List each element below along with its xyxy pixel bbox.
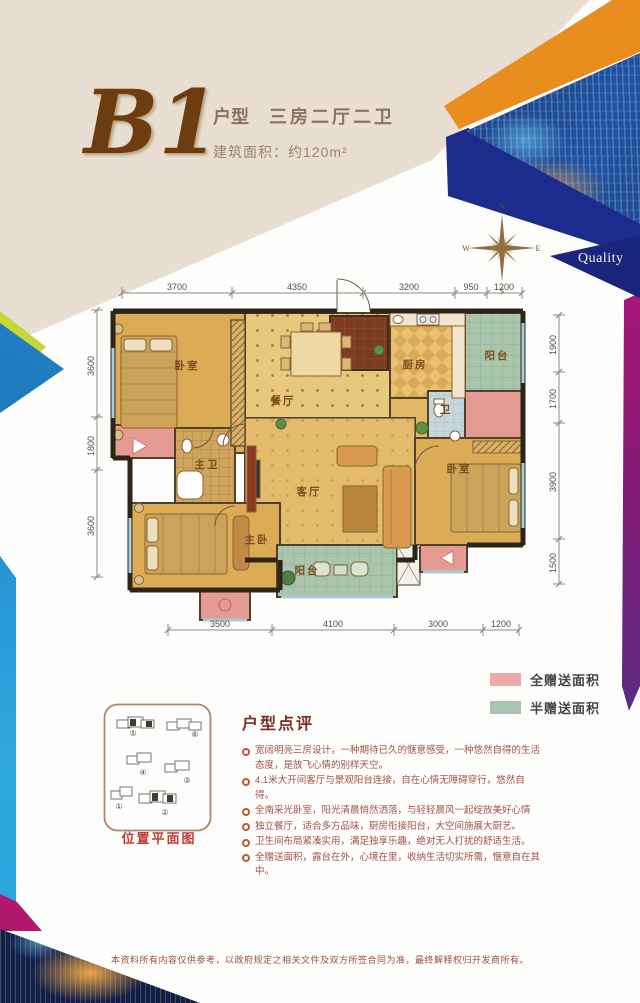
legend-row-full-gift: 全赠送面积 [490, 670, 600, 689]
review-bullet-text: 独立餐厅，适合多方品味，厨房衔接阳台，大空间施展大厨艺。 [255, 821, 521, 832]
review-section: 户型点评 宽阔明亮三房设计，一种期待已久的惬意感受，一种悠然自得的生活态度，是放… [242, 710, 540, 881]
dim-bottom-3: 3000 [428, 619, 448, 629]
building-6 [167, 719, 201, 730]
bullet-ring-icon [242, 748, 250, 756]
dim-top-3: 3200 [399, 282, 419, 292]
bullet-ring-icon [242, 839, 250, 847]
dim-right-1: 1900 [548, 335, 558, 355]
review-bullet-text: 宽阔明亮三房设计，一种期待已久的惬意感受，一种悠然自得的生活态度，是放飞心情的别… [255, 745, 540, 771]
location-plan: ⑤ ⑥ ④ ③ ① ② [103, 703, 215, 835]
room-label-balcony-top: 阳台 [485, 349, 510, 362]
bed-icon-topleft [113, 324, 177, 440]
gift-bay-bottomleft [200, 590, 250, 620]
dim-top-1: 3700 [167, 282, 187, 292]
legend-swatch-pink [490, 673, 521, 686]
legend-label-half-gift: 半赠送面积 [530, 698, 600, 717]
room-label-bedroom-right: 卧室 [447, 462, 472, 475]
room-label-kitchen: 厨房 [403, 358, 428, 371]
poster-canvas: Quality B1 户型 三房二厅二卫 建筑面积：约120m² [0, 0, 640, 1003]
building-2 [139, 791, 176, 803]
room-label-bedroom-topleft: 卧室 [175, 359, 200, 372]
room-label-dining: 餐厅 [270, 394, 296, 407]
header-text: 户型 三房二厅二卫 建筑面积：约120m² [213, 103, 543, 162]
room-label-bath-2: 卫 [440, 404, 453, 416]
building-1-number: ① [115, 802, 122, 811]
dim-top-5: 1200 [494, 282, 514, 292]
review-bullet: 宽阔明亮三房设计，一种期待已久的惬意感受，一种悠然自得的生活态度，是放飞心情的别… [242, 744, 540, 773]
room-label-balcony-bottom: 阳台 [295, 564, 320, 577]
review-bullet-text: 4.1米大开间客厅与景观阳台连接，自在心情无障碍穿行，悠然自得。 [255, 775, 525, 801]
room-label-living: 客厅 [296, 485, 322, 498]
dim-bottom-1: 3500 [210, 619, 230, 629]
review-bullet: 全赠送面积，露台在外，心境在里，收纳生活切实所需，惬意自在其中。 [242, 851, 540, 880]
review-bullet: 4.1米大开间客厅与景观阳台连接，自在心情无障碍穿行，悠然自得。 [242, 774, 540, 803]
review-bullet-text: 全赠送面积，露台在外，心境在里，收纳生活切实所需，惬意自在其中。 [255, 852, 540, 878]
gift-area-left [113, 425, 175, 458]
bullet-ring-icon [242, 823, 250, 831]
unit-type-line: 户型 三房二厅二卫 [213, 103, 543, 129]
building-2-number: ② [161, 808, 168, 817]
floor-plan: 3700 4350 3200 950 1200 3500 4100 3000 1… [85, 278, 575, 643]
building-3 [165, 761, 189, 772]
dim-top-2: 4350 [287, 282, 307, 292]
building-1 [111, 787, 132, 799]
review-bullet-text: 卫生间布局紧凑实用，满足独享乐趣，绝对无人打扰的舒适生活。 [255, 836, 531, 847]
building-5 [117, 717, 154, 728]
dim-left-2: 1800 [86, 436, 96, 456]
review-bullet: 独立餐厅，适合多方品味，厨房衔接阳台，大空间施展大厨艺。 [242, 820, 540, 835]
building-6-number: ⑥ [191, 730, 198, 739]
review-bullet: 卫生间布局紧凑实用，满足独享乐趣，绝对无人打扰的舒适生活。 [242, 835, 540, 850]
dim-bottom-2: 4100 [323, 619, 343, 629]
dim-left-1: 3600 [86, 356, 96, 376]
unit-type-label: 户型 [213, 103, 249, 129]
bullet-ring-icon [242, 808, 250, 816]
unit-area: 建筑面积：约120m² [213, 142, 543, 162]
review-bullet: 全南采光卧室，阳光清晨悄然洒落，与轻轻晨风一起绽放美好心情 [242, 804, 540, 819]
dim-left-3: 3600 [86, 516, 96, 536]
disclaimer: 本资料所有内容仅供参考，以政府规定之相关文件及双方所签合同为准，最终解释权归开发… [0, 953, 640, 966]
building-3-number: ③ [183, 776, 190, 785]
room-label-master-bedroom: 主卧 [245, 533, 270, 546]
dim-right-2: 1700 [548, 389, 558, 409]
bullet-ring-icon [242, 854, 250, 862]
building-4 [127, 753, 151, 764]
compass-north-label: N [499, 202, 505, 211]
unit-layout: 三房二厅二卫 [269, 103, 395, 129]
building-4-number: ④ [139, 768, 146, 777]
legend-label-full-gift: 全赠送面积 [530, 670, 600, 689]
review-list: 宽阔明亮三房设计，一种期待已久的惬意感受，一种悠然自得的生活态度，是放飞心情的别… [242, 744, 540, 880]
bullet-ring-icon [242, 778, 250, 786]
dim-right-4: 1500 [548, 553, 558, 573]
dim-right-3: 3900 [548, 472, 558, 492]
unit-code: B1 [84, 78, 220, 166]
room-label-master-bath: 主卫 [195, 458, 220, 471]
quality-label: Quality [578, 251, 624, 267]
compass-west-label: W [462, 244, 470, 253]
dim-bottom-4: 1200 [491, 619, 511, 629]
building-5-number: ⑤ [129, 729, 136, 738]
review-title: 户型点评 [242, 710, 540, 734]
dim-top-4: 950 [463, 282, 478, 292]
location-plan-caption: 位置平面图 [103, 828, 215, 847]
review-bullet-text: 全南采光卧室，阳光清晨悄然洒落，与轻轻晨风一起绽放美好心情 [255, 805, 531, 816]
compass-east-label: E [536, 244, 541, 253]
